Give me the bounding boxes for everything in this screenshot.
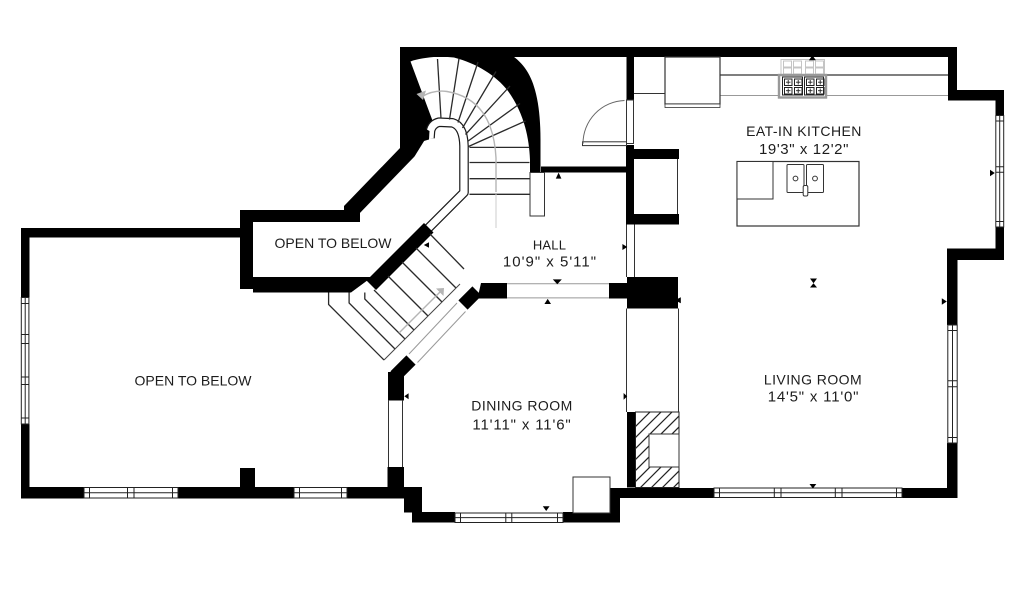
svg-text:HALL: HALL [533,238,566,253]
svg-text:EAT-IN KITCHEN: EAT-IN KITCHEN [746,123,862,139]
svg-text:LIVING ROOM: LIVING ROOM [764,372,862,388]
svg-text:14'5" x 11'0": 14'5" x 11'0" [768,389,860,406]
svg-text:11'11" x 11'6": 11'11" x 11'6" [472,417,571,434]
svg-text:10'9" x 5'11": 10'9" x 5'11" [503,254,597,271]
svg-text:DINING ROOM: DINING ROOM [471,398,572,414]
svg-text:OPEN TO BELOW: OPEN TO BELOW [275,235,393,251]
svg-text:19'3" x 12'2": 19'3" x 12'2" [759,141,849,158]
svg-text:OPEN TO BELOW: OPEN TO BELOW [135,373,253,389]
